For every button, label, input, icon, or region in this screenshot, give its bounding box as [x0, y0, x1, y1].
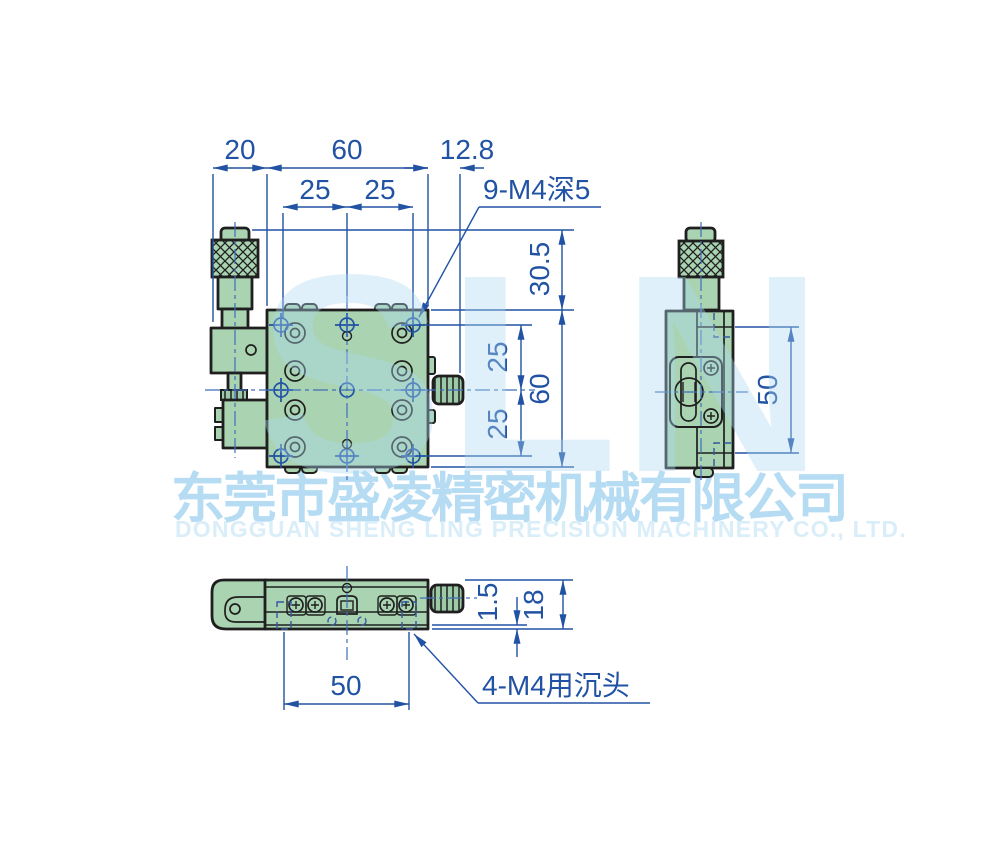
- side-view: 50: [655, 222, 799, 482]
- side-dimensions: 50: [735, 327, 799, 453]
- technical-drawing-page: 东莞市盛凌精密机械有限公司 DONGGUAN SHENG LING PRECIS…: [0, 0, 1001, 853]
- dim-head-height: 30.5: [524, 242, 555, 297]
- drawing-canvas: 20 60 12.8 25 25 9-M4深5 30.5 60 25: [0, 0, 1001, 853]
- front-view: 20 60 12.8 25 25 9-M4深5 30.5 60 25: [205, 134, 601, 482]
- dim-hole-pitch-y1: 25: [482, 341, 513, 372]
- callout-counterbore: 4-M4用沉头: [482, 670, 630, 701]
- dim-counterbore-span: 50: [330, 670, 361, 701]
- dim-base-lip: 1.5: [472, 583, 503, 622]
- micrometer-bracket: [211, 328, 267, 373]
- callout-tapped-holes: 9-M4深5: [483, 174, 590, 205]
- lock-nut: [221, 390, 247, 400]
- callout-leader: [414, 634, 478, 703]
- spindle-foot: [694, 468, 713, 477]
- micrometer-assembly: [211, 228, 267, 448]
- extension-lines: [283, 213, 413, 318]
- dim-hole-pitch-x2: 25: [364, 174, 395, 205]
- bottom-view: 50 1.5 18 4-M4用沉头: [212, 566, 650, 710]
- dim-knob-overhang: 12.8: [440, 134, 495, 165]
- dim-micrometer-bracket-width: 20: [224, 134, 255, 165]
- dim-hole-pitch-x1: 25: [299, 174, 330, 205]
- dim-stage-height: 60: [524, 373, 555, 404]
- dim-hole-pitch-y2: 25: [482, 408, 513, 439]
- spindle-housing: [223, 400, 267, 448]
- dim-base-thickness: 18: [518, 589, 549, 620]
- dim-mount-hole-span: 50: [752, 374, 783, 405]
- dim-stage-width: 60: [331, 134, 362, 165]
